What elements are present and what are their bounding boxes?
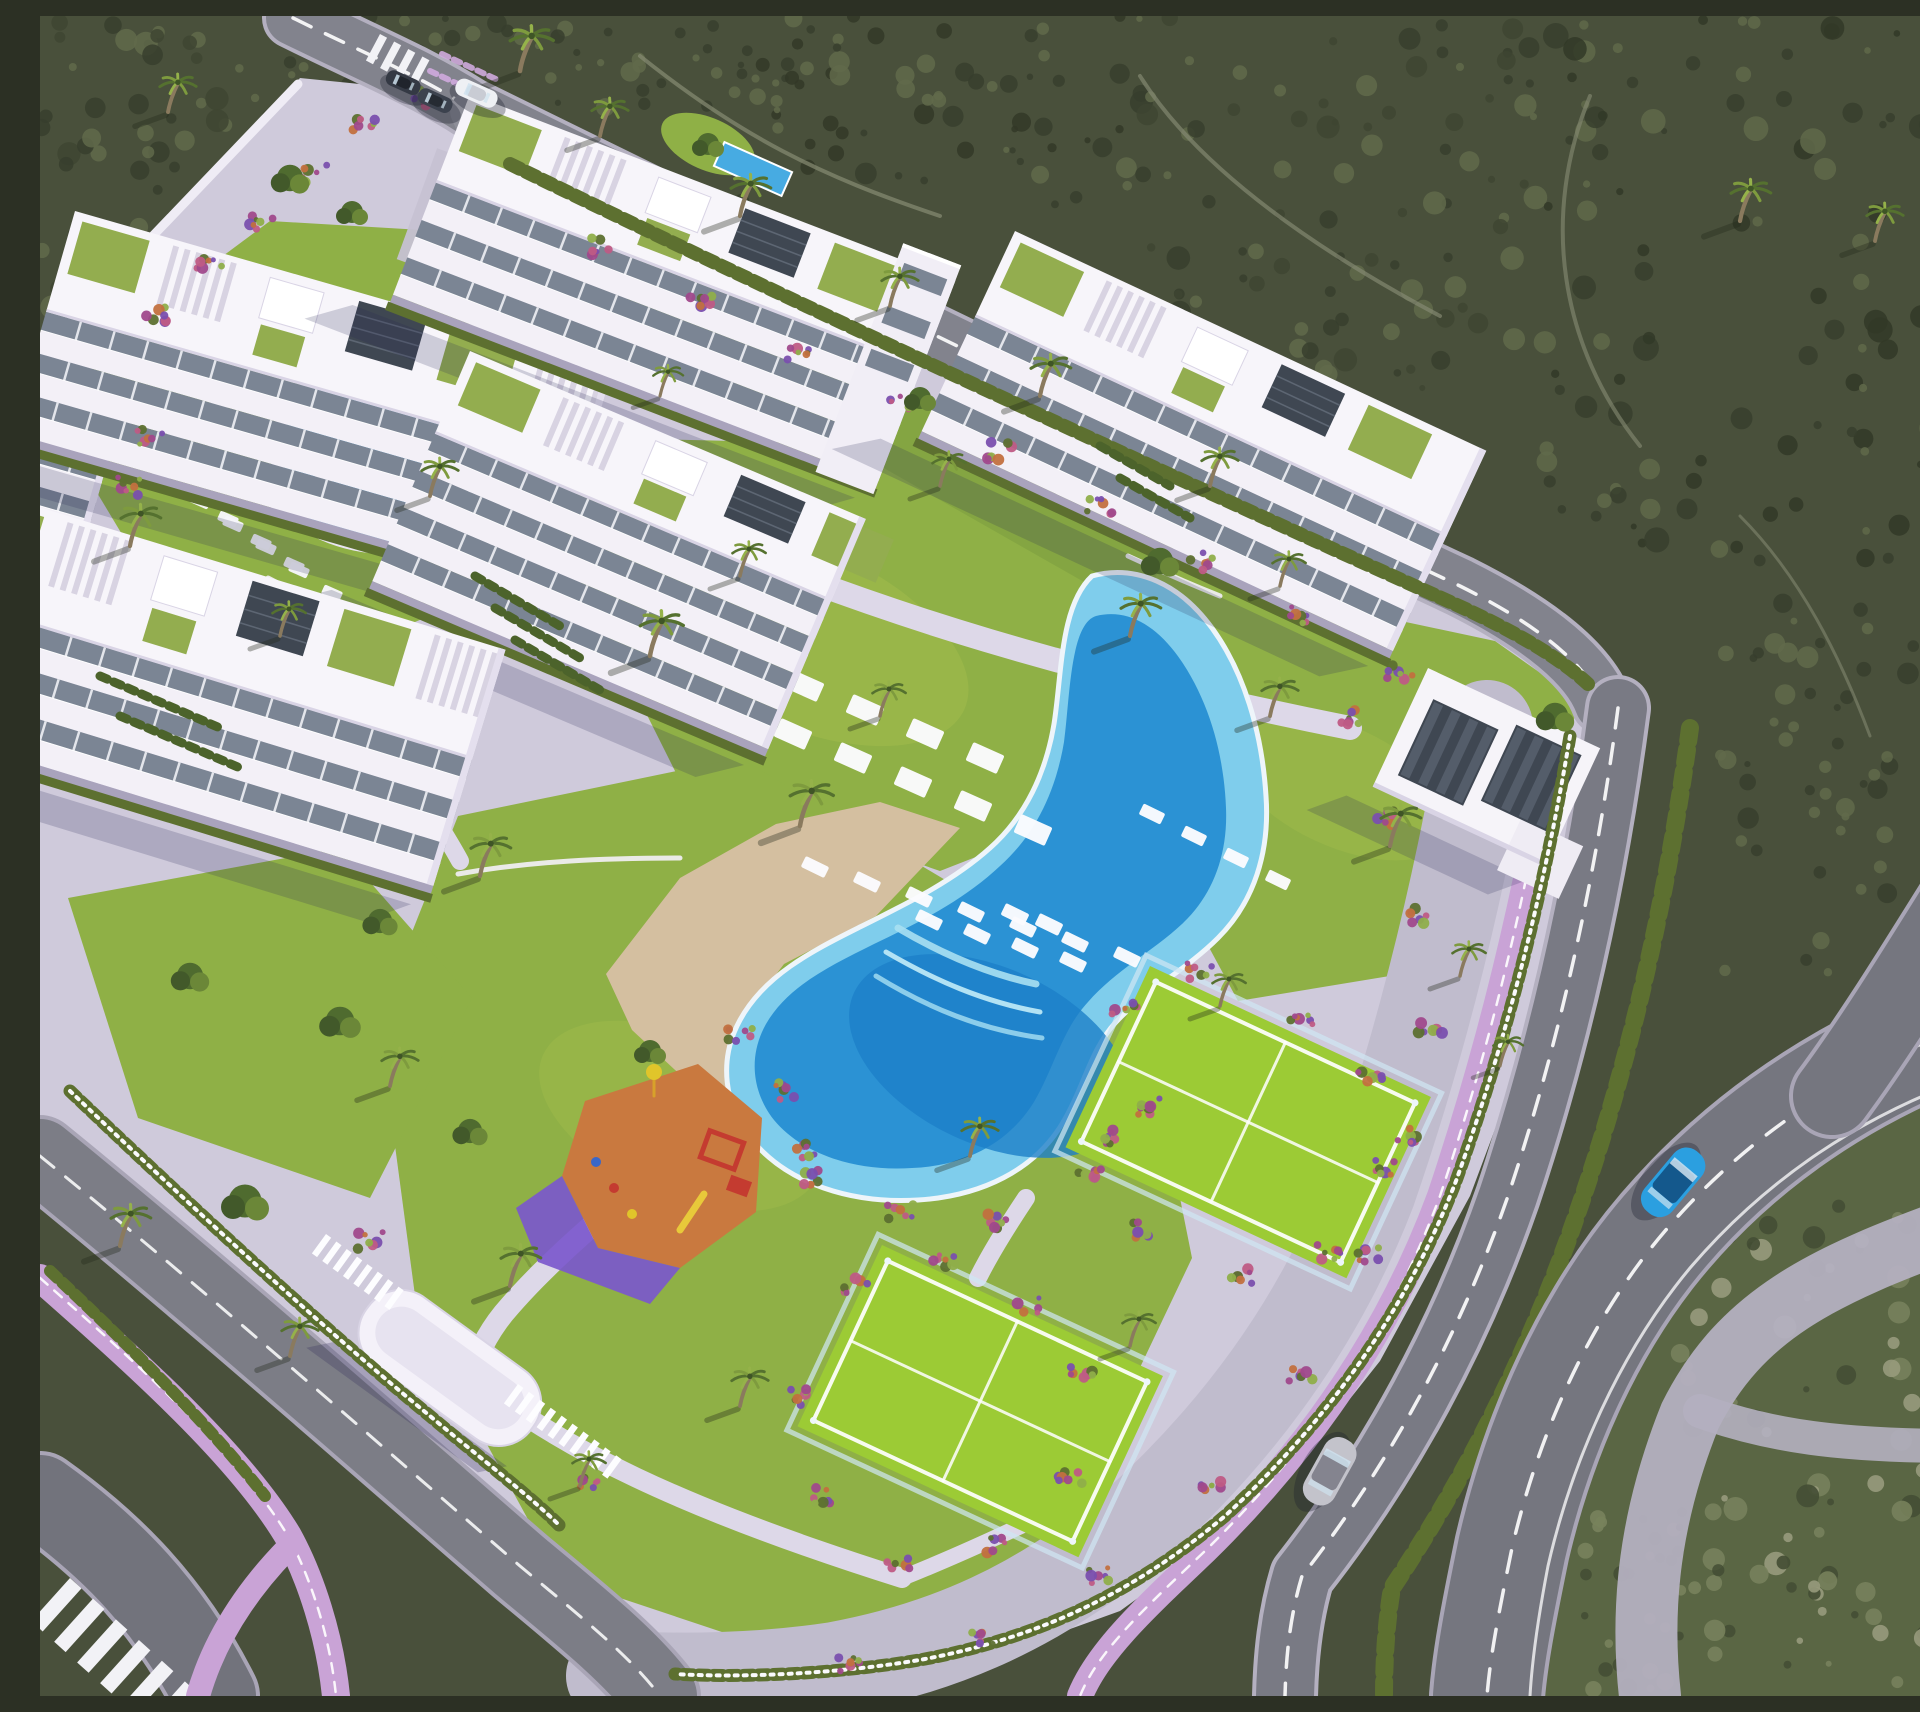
- spring-rider: [591, 1157, 601, 1167]
- aerial-site-render: [40, 16, 1920, 1696]
- flower-bed: [799, 1166, 823, 1189]
- spring-rider: [627, 1209, 637, 1219]
- playground-pole-ball: [646, 1064, 662, 1080]
- scene-svg: [40, 16, 1920, 1696]
- spring-rider: [609, 1183, 619, 1193]
